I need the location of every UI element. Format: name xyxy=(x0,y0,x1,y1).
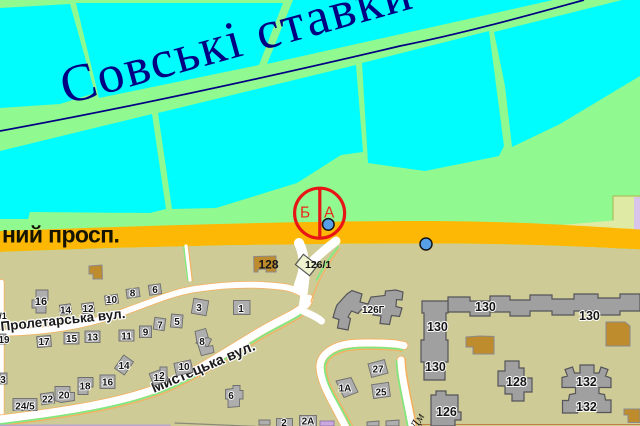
svg-text:1А: 1А xyxy=(339,384,352,395)
svg-text:128: 128 xyxy=(506,375,527,389)
svg-text:8: 8 xyxy=(199,337,205,348)
svg-text:2: 2 xyxy=(159,371,165,382)
svg-text:24/5: 24/5 xyxy=(15,402,35,413)
svg-text:6: 6 xyxy=(228,391,234,402)
svg-text:16: 16 xyxy=(102,378,114,389)
svg-text:15: 15 xyxy=(66,334,78,345)
svg-text:5: 5 xyxy=(174,317,180,328)
svg-text:130: 130 xyxy=(425,360,446,374)
svg-text:20: 20 xyxy=(58,391,70,402)
svg-text:2: 2 xyxy=(281,418,287,426)
svg-text:19: 19 xyxy=(0,335,10,346)
svg-text:27: 27 xyxy=(372,365,384,376)
svg-text:25: 25 xyxy=(375,388,387,399)
svg-text:16: 16 xyxy=(35,296,47,308)
svg-text:10: 10 xyxy=(178,362,190,373)
svg-text:132: 132 xyxy=(576,400,597,414)
svg-text:130: 130 xyxy=(475,300,496,314)
svg-text:/1: /1 xyxy=(0,311,7,321)
svg-text:3: 3 xyxy=(196,303,202,314)
svg-text:17: 17 xyxy=(38,337,50,348)
svg-text:ний просп.: ний просп. xyxy=(2,222,119,248)
svg-text:126Г: 126Г xyxy=(362,305,385,316)
svg-text:8: 8 xyxy=(130,289,136,300)
svg-text:12: 12 xyxy=(82,304,94,315)
svg-text:14: 14 xyxy=(60,306,72,317)
svg-text:128: 128 xyxy=(259,258,279,272)
svg-text:9: 9 xyxy=(143,328,149,339)
svg-text:2А: 2А xyxy=(302,417,315,426)
svg-text:130: 130 xyxy=(427,320,448,334)
svg-text:10: 10 xyxy=(106,295,118,306)
svg-text:11: 11 xyxy=(121,332,132,343)
svg-text:1: 1 xyxy=(238,304,244,315)
svg-text:14: 14 xyxy=(118,361,130,372)
svg-text:126/1: 126/1 xyxy=(305,259,331,271)
svg-text:6: 6 xyxy=(152,285,158,296)
svg-text:Б: Б xyxy=(300,205,310,222)
svg-text:18: 18 xyxy=(79,382,91,393)
svg-text:132: 132 xyxy=(576,375,597,389)
svg-text:22: 22 xyxy=(42,395,54,406)
svg-text:126: 126 xyxy=(436,405,457,419)
svg-text:7: 7 xyxy=(157,321,163,332)
svg-text:3: 3 xyxy=(0,375,6,386)
svg-text:13: 13 xyxy=(87,333,99,344)
svg-text:130: 130 xyxy=(579,309,600,323)
